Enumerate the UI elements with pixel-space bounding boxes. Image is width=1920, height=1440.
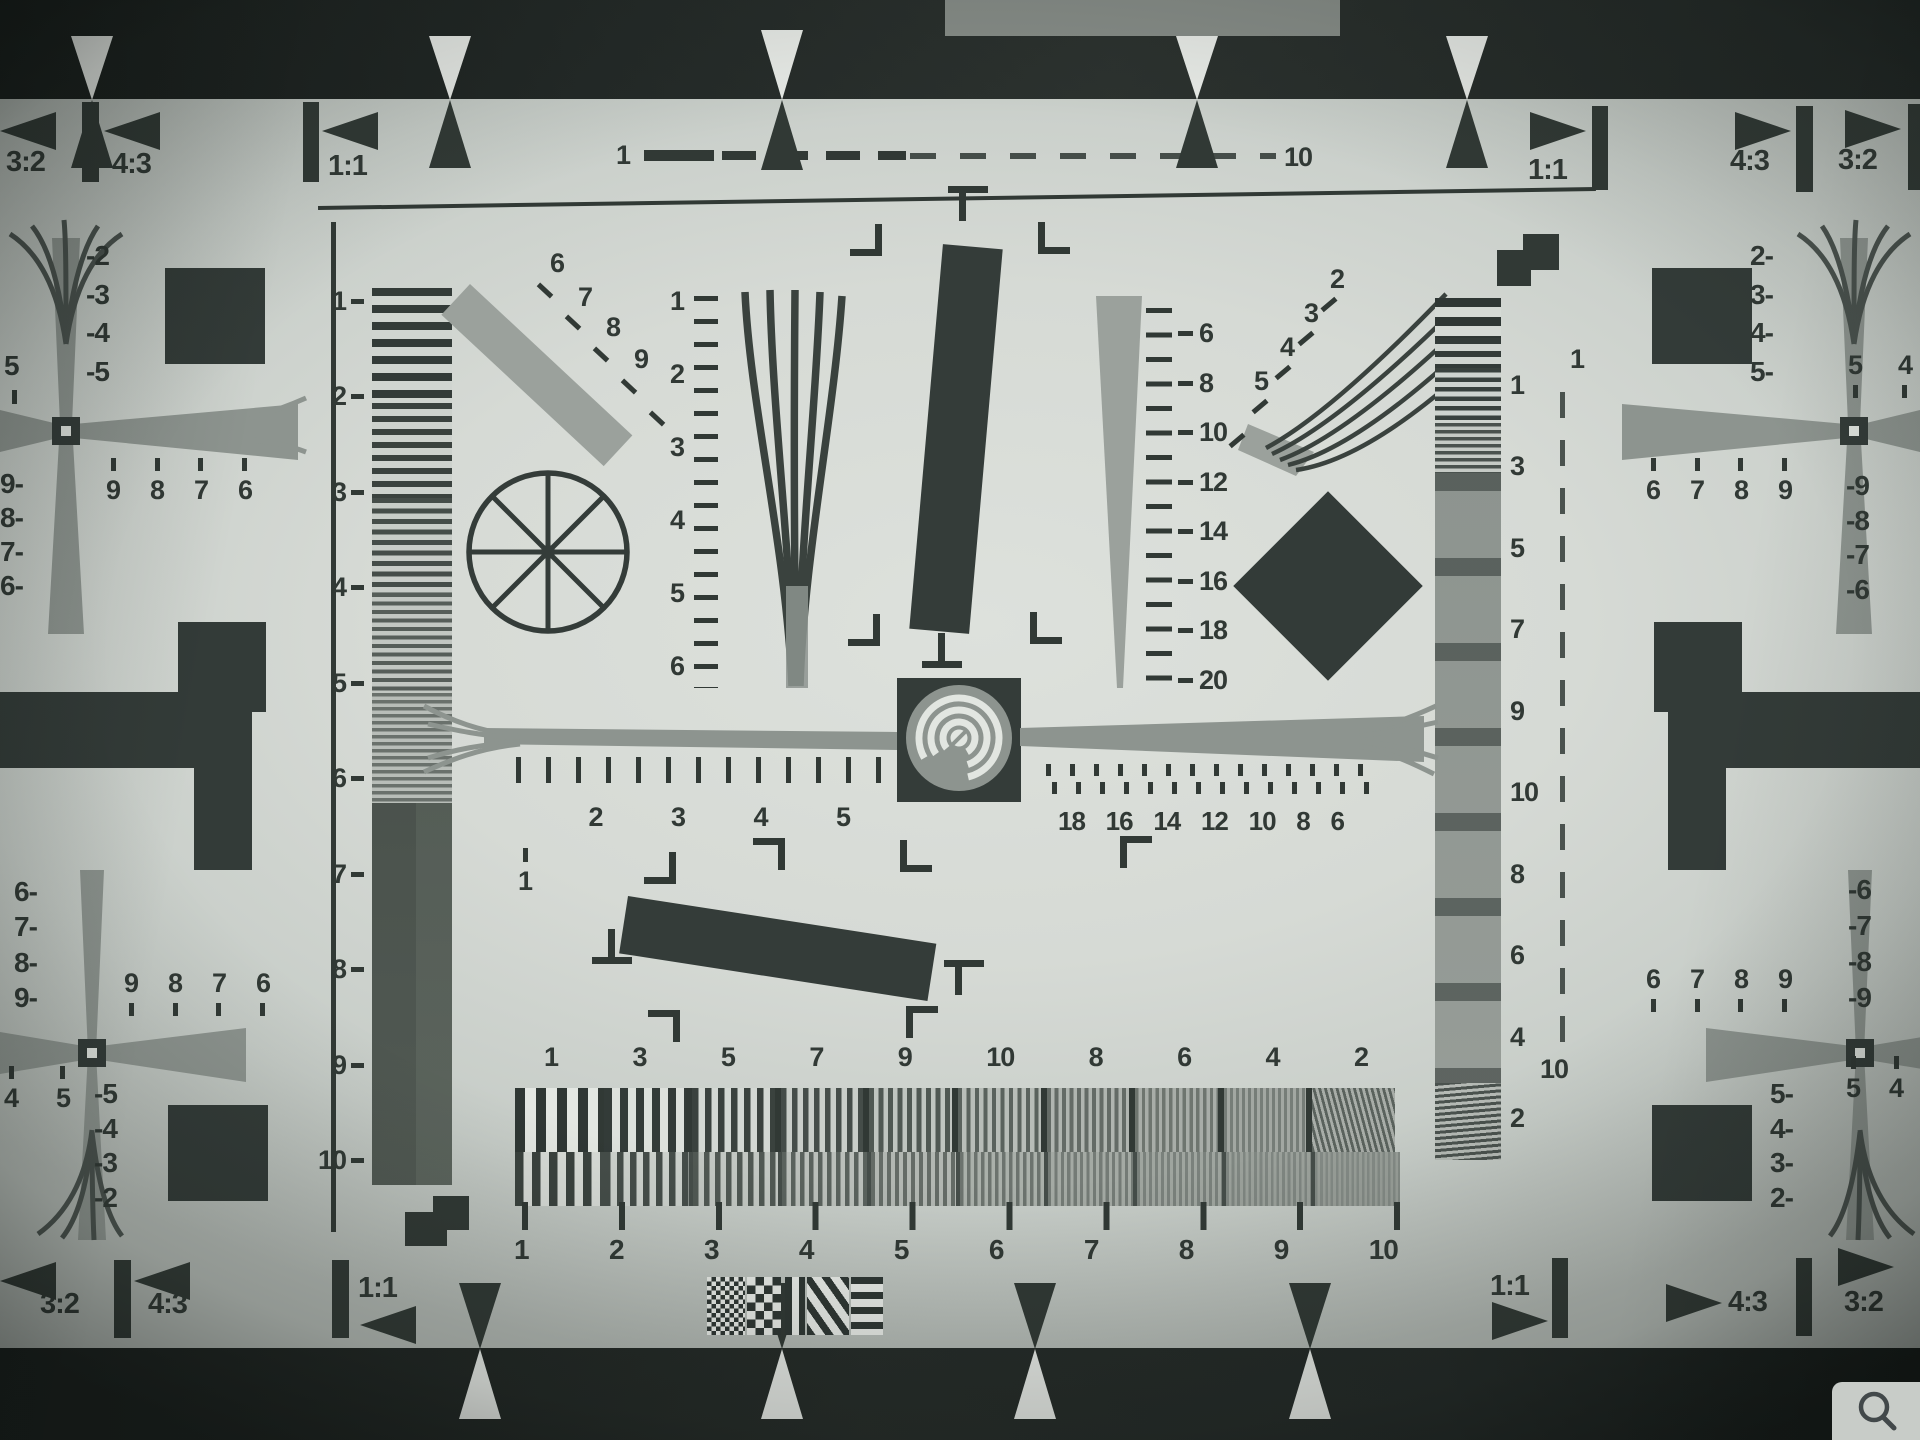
magnifying-glass-icon <box>1850 1389 1902 1433</box>
corner-mark <box>1030 612 1062 644</box>
aspect-tick-bar <box>303 102 319 182</box>
aspect-ratio-label: 1:1 <box>1528 156 1567 185</box>
corner-mark <box>848 614 880 646</box>
scale-label: 10 <box>1510 777 1538 808</box>
dark-square <box>1652 268 1752 364</box>
scale-label: 1 <box>332 286 364 317</box>
corner-mark <box>1120 836 1152 868</box>
scale-label: 5 <box>894 1234 909 1266</box>
scale-label: 4 <box>4 1066 18 1114</box>
aspect-arrow <box>1492 1302 1548 1340</box>
scale-label: 8 <box>1178 368 1227 399</box>
scale-label: 6 <box>256 968 270 1016</box>
aspect-ratio-label: 1:1 <box>328 152 367 181</box>
scale-label: 3 <box>632 1042 646 1073</box>
aspect-tick-bar <box>1908 104 1920 190</box>
horizontal-stripes <box>851 1277 883 1335</box>
scale-label: 7- <box>0 536 23 568</box>
dashed-vertical-line <box>1560 392 1565 1046</box>
scale-label: 9 <box>1274 1234 1289 1266</box>
aspect-arrow <box>1845 110 1901 148</box>
scale-label: 7 <box>1690 458 1704 506</box>
scale-label: 10 <box>986 1042 1014 1073</box>
top-scale-dashes-coarse <box>722 151 906 160</box>
scale-label: -5 <box>86 356 109 388</box>
scale-label: 10 <box>1249 806 1276 837</box>
right-wedge-scale: 68101214161820 <box>1178 318 1227 696</box>
t-bar-stem <box>1668 692 1726 870</box>
scale-label: 4 <box>670 505 684 536</box>
scale-label: 4 <box>799 1234 814 1266</box>
scale-label: 1 <box>518 848 532 897</box>
aspect-tick-bar <box>114 1260 131 1338</box>
scale-label: 5 <box>1848 350 1862 398</box>
scale-label: 2- <box>1750 240 1773 272</box>
scale-label: 5 <box>1510 533 1538 564</box>
scale-label: 3 <box>670 432 684 463</box>
aspect-ratio-label: 3:2 <box>1844 1288 1883 1317</box>
cross-outer-column: 6-7-8-9- <box>14 876 37 1014</box>
corner-mark <box>753 838 785 870</box>
right-arm-ticks <box>1052 782 1372 794</box>
wedge-scale-ticks <box>1146 308 1172 700</box>
scale-label: 9- <box>14 982 37 1014</box>
scale-label: 4 <box>1898 350 1912 398</box>
top-scale-end: 10 <box>1284 144 1312 171</box>
scale-label: 2 <box>332 381 364 412</box>
scale-label: 7- <box>14 911 37 943</box>
cross-outer-column: -6-7-8-9 <box>1848 874 1871 1014</box>
dark-square <box>168 1105 268 1201</box>
scale-label: -3 <box>86 279 109 311</box>
scale-label: 7 <box>578 282 593 313</box>
vertical-bars <box>785 1277 805 1335</box>
corner-mark <box>644 852 676 884</box>
diagonal-stripes <box>807 1277 849 1335</box>
scale-label: 8 <box>150 458 164 506</box>
burst-top-scale: 13579108642 <box>544 1042 1368 1073</box>
scale-label: 2 <box>588 802 602 851</box>
scale-label: -8 <box>1848 946 1871 978</box>
scale-label: 3 <box>332 477 364 508</box>
scale-label: 18 <box>1178 615 1227 646</box>
scale-label: 5- <box>1770 1078 1793 1110</box>
aspect-arrow <box>1530 112 1586 150</box>
scale-label: 14 <box>1178 516 1227 547</box>
scale-label: 3 <box>671 802 685 851</box>
scale-label: 5- <box>1750 356 1773 388</box>
right-resolution-strip <box>1435 298 1501 1160</box>
aspect-ratio-label: 3:2 <box>6 148 45 177</box>
cross-outer-row: 543 <box>1846 1056 1920 1104</box>
scale-label: 6 <box>1510 940 1538 971</box>
scale-label: 8 <box>606 312 621 343</box>
left-strip-scale: 12345678910 <box>314 286 364 1176</box>
tee-mark <box>592 928 632 964</box>
scale-label: -9 <box>1848 982 1871 1014</box>
scale-label: 10 <box>1178 417 1227 448</box>
aspect-ratio-label: 3:2 <box>40 1290 79 1319</box>
scale-label: 5 <box>1254 366 1269 397</box>
scale-label: 6 <box>1178 318 1227 349</box>
dash-line-top-label: 1 <box>1570 346 1584 373</box>
zoom-button[interactable] <box>1832 1382 1920 1440</box>
aspect-ratio-label: 1:1 <box>358 1274 397 1303</box>
scale-label: 6 <box>1177 1042 1191 1073</box>
iso12233-test-chart-photo: 3:2 4:3 1:1 1 10 1:1 4:3 3:2 3:2 4:3 1:1… <box>0 0 1920 1440</box>
scale-label: 8 <box>1734 458 1748 506</box>
scale-label: 3 <box>1510 451 1538 482</box>
scale-label: -4 <box>94 1113 117 1145</box>
right-arm-scale: 181614121086 <box>1058 806 1344 837</box>
scale-label: 5 <box>836 802 850 851</box>
scale-label: 9 <box>898 1042 912 1073</box>
burst-row-2 <box>515 1152 1400 1206</box>
scale-label: 9 <box>1778 964 1792 1012</box>
scale-label: 1 <box>544 1042 558 1073</box>
scale-label: 8 <box>1510 859 1538 890</box>
scale-label: -4 <box>86 317 109 349</box>
scale-label: 1 <box>514 1234 529 1266</box>
scale-label: 3- <box>1750 279 1773 311</box>
scale-label: 7 <box>1510 614 1538 645</box>
aspect-arrow <box>0 112 56 150</box>
aspect-ratio-label: 4:3 <box>112 150 151 179</box>
cross-outer-column: -9-8-7-6 <box>1846 470 1869 606</box>
key-mark <box>1523 234 1559 270</box>
fine-checkerboard <box>707 1277 745 1335</box>
coarse-checkerboard <box>747 1277 781 1335</box>
scale-label: 6 <box>1646 458 1660 506</box>
scale-label: 2- <box>1770 1182 1793 1214</box>
scale-label: 4 <box>1889 1056 1903 1104</box>
scale-label: 7 <box>194 458 208 506</box>
top-scale-solid-dash <box>644 150 714 161</box>
scale-label: 9 <box>1778 458 1792 506</box>
corner-mark <box>900 840 932 872</box>
aspect-arrow <box>1666 1284 1722 1322</box>
scale-label: 5 <box>1846 1056 1860 1104</box>
scale-label: -5 <box>94 1078 117 1110</box>
scale-label: 6- <box>0 570 23 602</box>
aspect-tick-bar <box>1796 1258 1812 1336</box>
aspect-ratio-label: 3:2 <box>1838 146 1877 175</box>
corner-mark <box>850 224 882 256</box>
scale-label: 7 <box>332 859 364 890</box>
scale-label: 12 <box>1178 467 1227 498</box>
scale-label: -9 <box>1846 470 1869 502</box>
scale-label: 9 <box>1510 696 1538 727</box>
scale-label: 14 <box>1153 806 1180 837</box>
tee-mark <box>922 632 962 668</box>
top-scale-start: 1 <box>616 142 630 169</box>
tick <box>12 390 17 404</box>
t-bar-stem <box>194 692 252 870</box>
spoke-wheel <box>460 464 636 640</box>
key-mark <box>433 1196 469 1230</box>
dash-line-bottom-label: 10 <box>1540 1056 1568 1083</box>
tee-mark <box>948 186 988 222</box>
aspect-ratio-label: 4:3 <box>1730 147 1769 176</box>
scale-label: 7 <box>212 968 226 1016</box>
scale-label: 4 <box>1280 332 1295 363</box>
scale-label: 10 <box>1369 1234 1398 1266</box>
cross-row-scale: 9876 <box>124 968 270 1016</box>
burst-bottom-scale: 12345678910 <box>514 1234 1398 1266</box>
burst-bottom-ticks <box>522 1202 1400 1230</box>
scale-label: 6 <box>989 1234 1004 1266</box>
aspect-ratio-label: 4:3 <box>1728 1288 1767 1317</box>
scale-label: 8 <box>1296 806 1309 837</box>
scale-label: 9- <box>0 468 23 500</box>
cross-inner-column: 5-4-3-2- <box>1770 1078 1793 1214</box>
scale-label: 20 <box>1178 665 1227 696</box>
scale-label: 6 <box>238 458 252 506</box>
scale-label: -6 <box>1846 574 1869 606</box>
scale-label: 9 <box>332 1050 364 1081</box>
vertical-taper-wedge <box>1090 292 1154 694</box>
burst-row-1 <box>515 1088 1395 1152</box>
aspect-tick-bar <box>1592 106 1608 190</box>
scale-label: 3- <box>1770 1147 1793 1179</box>
scale-label: 2 <box>609 1234 624 1266</box>
scale-label: 5 <box>56 1066 70 1114</box>
scale-label: 3 <box>1304 298 1319 329</box>
top-scale-dashes-fine <box>910 153 1276 159</box>
scale-label: 7 <box>809 1042 823 1073</box>
scale-label: 8- <box>0 502 23 534</box>
scale-label: 4- <box>1770 1113 1793 1145</box>
right-strip-scale: 13579108642 <box>1510 370 1538 1134</box>
scale-label: 5 <box>721 1042 735 1073</box>
scale-label: 2 <box>1510 1103 1538 1134</box>
scale-label: 8 <box>1734 964 1748 1012</box>
aspect-arrow <box>322 112 378 150</box>
scale-label: 6 <box>670 651 684 682</box>
scale-label: 6 <box>1330 806 1343 837</box>
scale-label: 4 <box>332 572 364 603</box>
scale-label: 8 <box>168 968 182 1016</box>
cross-row-scale: 9876 <box>106 458 252 506</box>
corner-mark <box>648 1010 680 1042</box>
scale-label: 12 <box>1201 806 1228 837</box>
center-circular-target <box>897 678 1021 802</box>
cross-row-scale: 6789 <box>1646 458 1792 506</box>
scale-label: 8 <box>1089 1042 1103 1073</box>
cross-outer-row: 45 <box>4 1066 70 1114</box>
cross-inner-column: -5-4-3-2 <box>94 1078 117 1214</box>
dark-band-bottom <box>0 1348 1920 1440</box>
scale-label: 2 <box>1330 264 1345 295</box>
cross-outer-label: 5 <box>4 352 19 380</box>
scale-label: -2 <box>94 1182 117 1214</box>
scale-label: 6 <box>332 763 364 794</box>
left-arm-ticks <box>516 757 888 783</box>
tee-mark <box>944 960 984 996</box>
scale-label: 4 <box>1266 1042 1280 1073</box>
dark-square <box>165 268 265 364</box>
scale-label: 16 <box>1178 566 1227 597</box>
aspect-tick-bar <box>1552 1258 1568 1338</box>
scale-label: -2 <box>86 240 109 272</box>
aspect-arrow <box>360 1306 416 1344</box>
scale-label: 7 <box>1084 1234 1099 1266</box>
scale-label: 6 <box>1646 964 1660 1012</box>
right-arm-ticks <box>1046 764 1366 776</box>
t-bar <box>0 692 212 768</box>
cross-row-scale: 6789 <box>1646 964 1792 1012</box>
scale-label: 2 <box>670 359 684 390</box>
scale-label: -6 <box>1848 874 1871 906</box>
scale-label: 7 <box>1690 964 1704 1012</box>
scale-label: -7 <box>1846 539 1869 571</box>
dark-square <box>1652 1105 1752 1201</box>
cross-wedge-scale: 2-3-4-5- <box>1750 240 1773 388</box>
scale-label: 9 <box>124 968 138 1016</box>
scale-label: 8- <box>14 947 37 979</box>
scale-label: 6- <box>14 876 37 908</box>
scale-label: 10 <box>318 1145 364 1176</box>
scale-label: -7 <box>1848 910 1871 942</box>
scale-label: 16 <box>1106 806 1133 837</box>
scale-label: 4 <box>1510 1022 1538 1053</box>
scale-label: 1 <box>670 286 684 317</box>
scale-label: -8 <box>1846 505 1869 537</box>
scale-label: 5 <box>670 578 684 609</box>
cross-outer-column: 9-8-7-6- <box>0 468 23 602</box>
aspect-arrow <box>1838 1248 1894 1286</box>
left-arm-scale: 12345 <box>506 802 850 851</box>
center-fan-scale: 123456 <box>644 286 684 682</box>
center-fan-ticks <box>694 296 718 688</box>
scale-label: 5 <box>332 668 364 699</box>
background-above-chart <box>945 0 1340 36</box>
scale-label: 8 <box>332 954 364 985</box>
cross-wedge-scale: -2-3-4-5 <box>86 240 109 388</box>
scale-label: 8 <box>1179 1234 1194 1266</box>
aspect-tick-bar <box>1796 106 1813 192</box>
aspect-tick-bar <box>332 1260 349 1338</box>
scale-label: 1 <box>1510 370 1538 401</box>
scale-label: -3 <box>94 1147 117 1179</box>
scale-label: 6 <box>550 248 565 279</box>
t-bar <box>1708 692 1920 768</box>
scale-label: 3 <box>704 1234 719 1266</box>
scale-label: 4- <box>1750 317 1773 349</box>
cross-outer-row: 54 <box>1848 350 1912 398</box>
corner-mark <box>906 1006 938 1038</box>
aspect-ratio-label: 4:3 <box>148 1290 187 1319</box>
scale-label: 9 <box>106 458 120 506</box>
scale-label: 2 <box>1354 1042 1368 1073</box>
corner-mark <box>1038 222 1070 254</box>
aspect-ratio-label: 1:1 <box>1490 1272 1529 1301</box>
scale-label: 18 <box>1058 806 1085 837</box>
